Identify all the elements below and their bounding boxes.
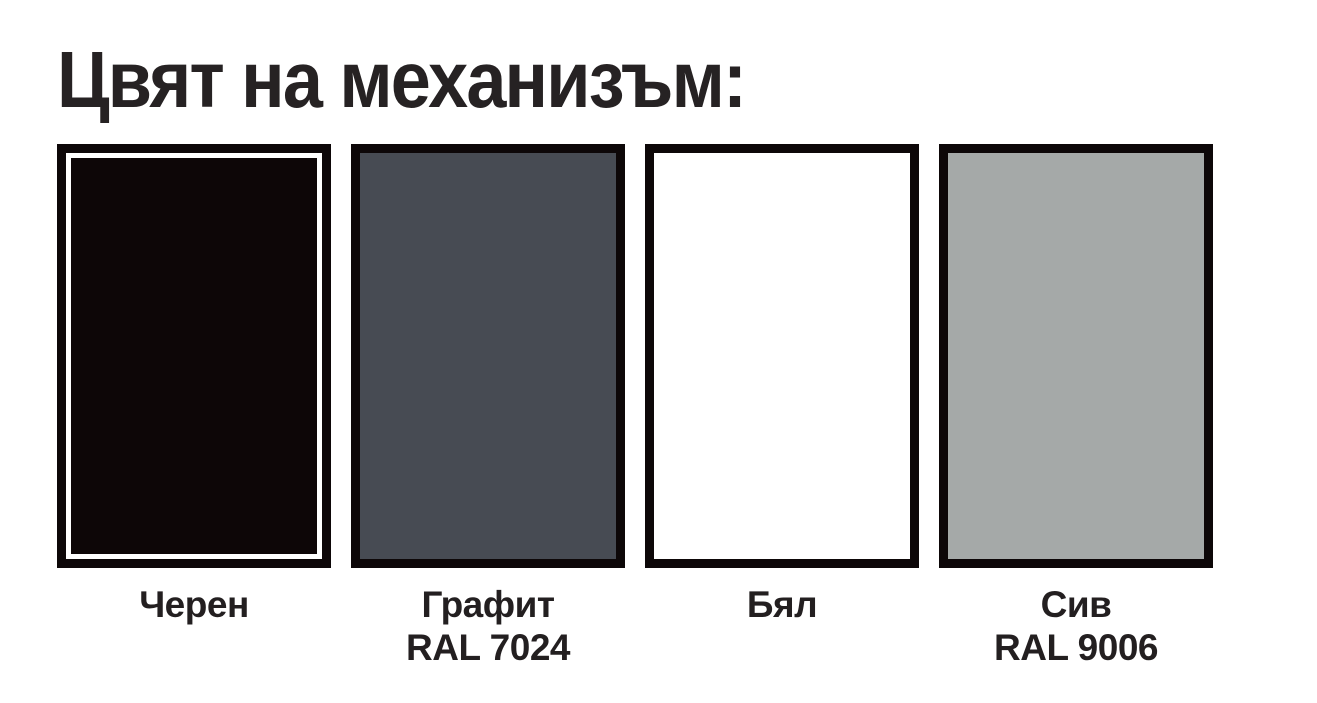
swatch-color-name: Бял — [747, 584, 817, 627]
swatch-label: Бял — [747, 584, 817, 627]
swatch-color-name: Сив — [994, 584, 1158, 627]
page-title: Цвят на механизъм: — [57, 34, 745, 126]
swatch-ral-code: RAL 9006 — [994, 627, 1158, 670]
color-swatch-graphite — [351, 144, 625, 568]
color-swatch-gray — [939, 144, 1213, 568]
swatch-cell-white: Бял — [645, 144, 919, 670]
swatch-label: Сив RAL 9006 — [994, 584, 1158, 670]
color-swatch-white — [645, 144, 919, 568]
swatch-ral-code: RAL 7024 — [406, 627, 570, 670]
swatch-cell-black: Черен — [57, 144, 331, 670]
swatch-cell-graphite: Графит RAL 7024 — [351, 144, 625, 670]
swatch-color-name: Графит — [406, 584, 570, 627]
color-options-page: Цвят на механизъм: Черен Графит RAL 7024… — [0, 0, 1317, 703]
swatch-label: Графит RAL 7024 — [406, 584, 570, 670]
swatch-row: Черен Графит RAL 7024 Бял Сив RAL 9006 — [57, 144, 1213, 670]
swatch-cell-gray: Сив RAL 9006 — [939, 144, 1213, 670]
swatch-color-name: Черен — [139, 584, 249, 627]
swatch-label: Черен — [139, 584, 249, 627]
color-swatch-black — [57, 144, 331, 568]
